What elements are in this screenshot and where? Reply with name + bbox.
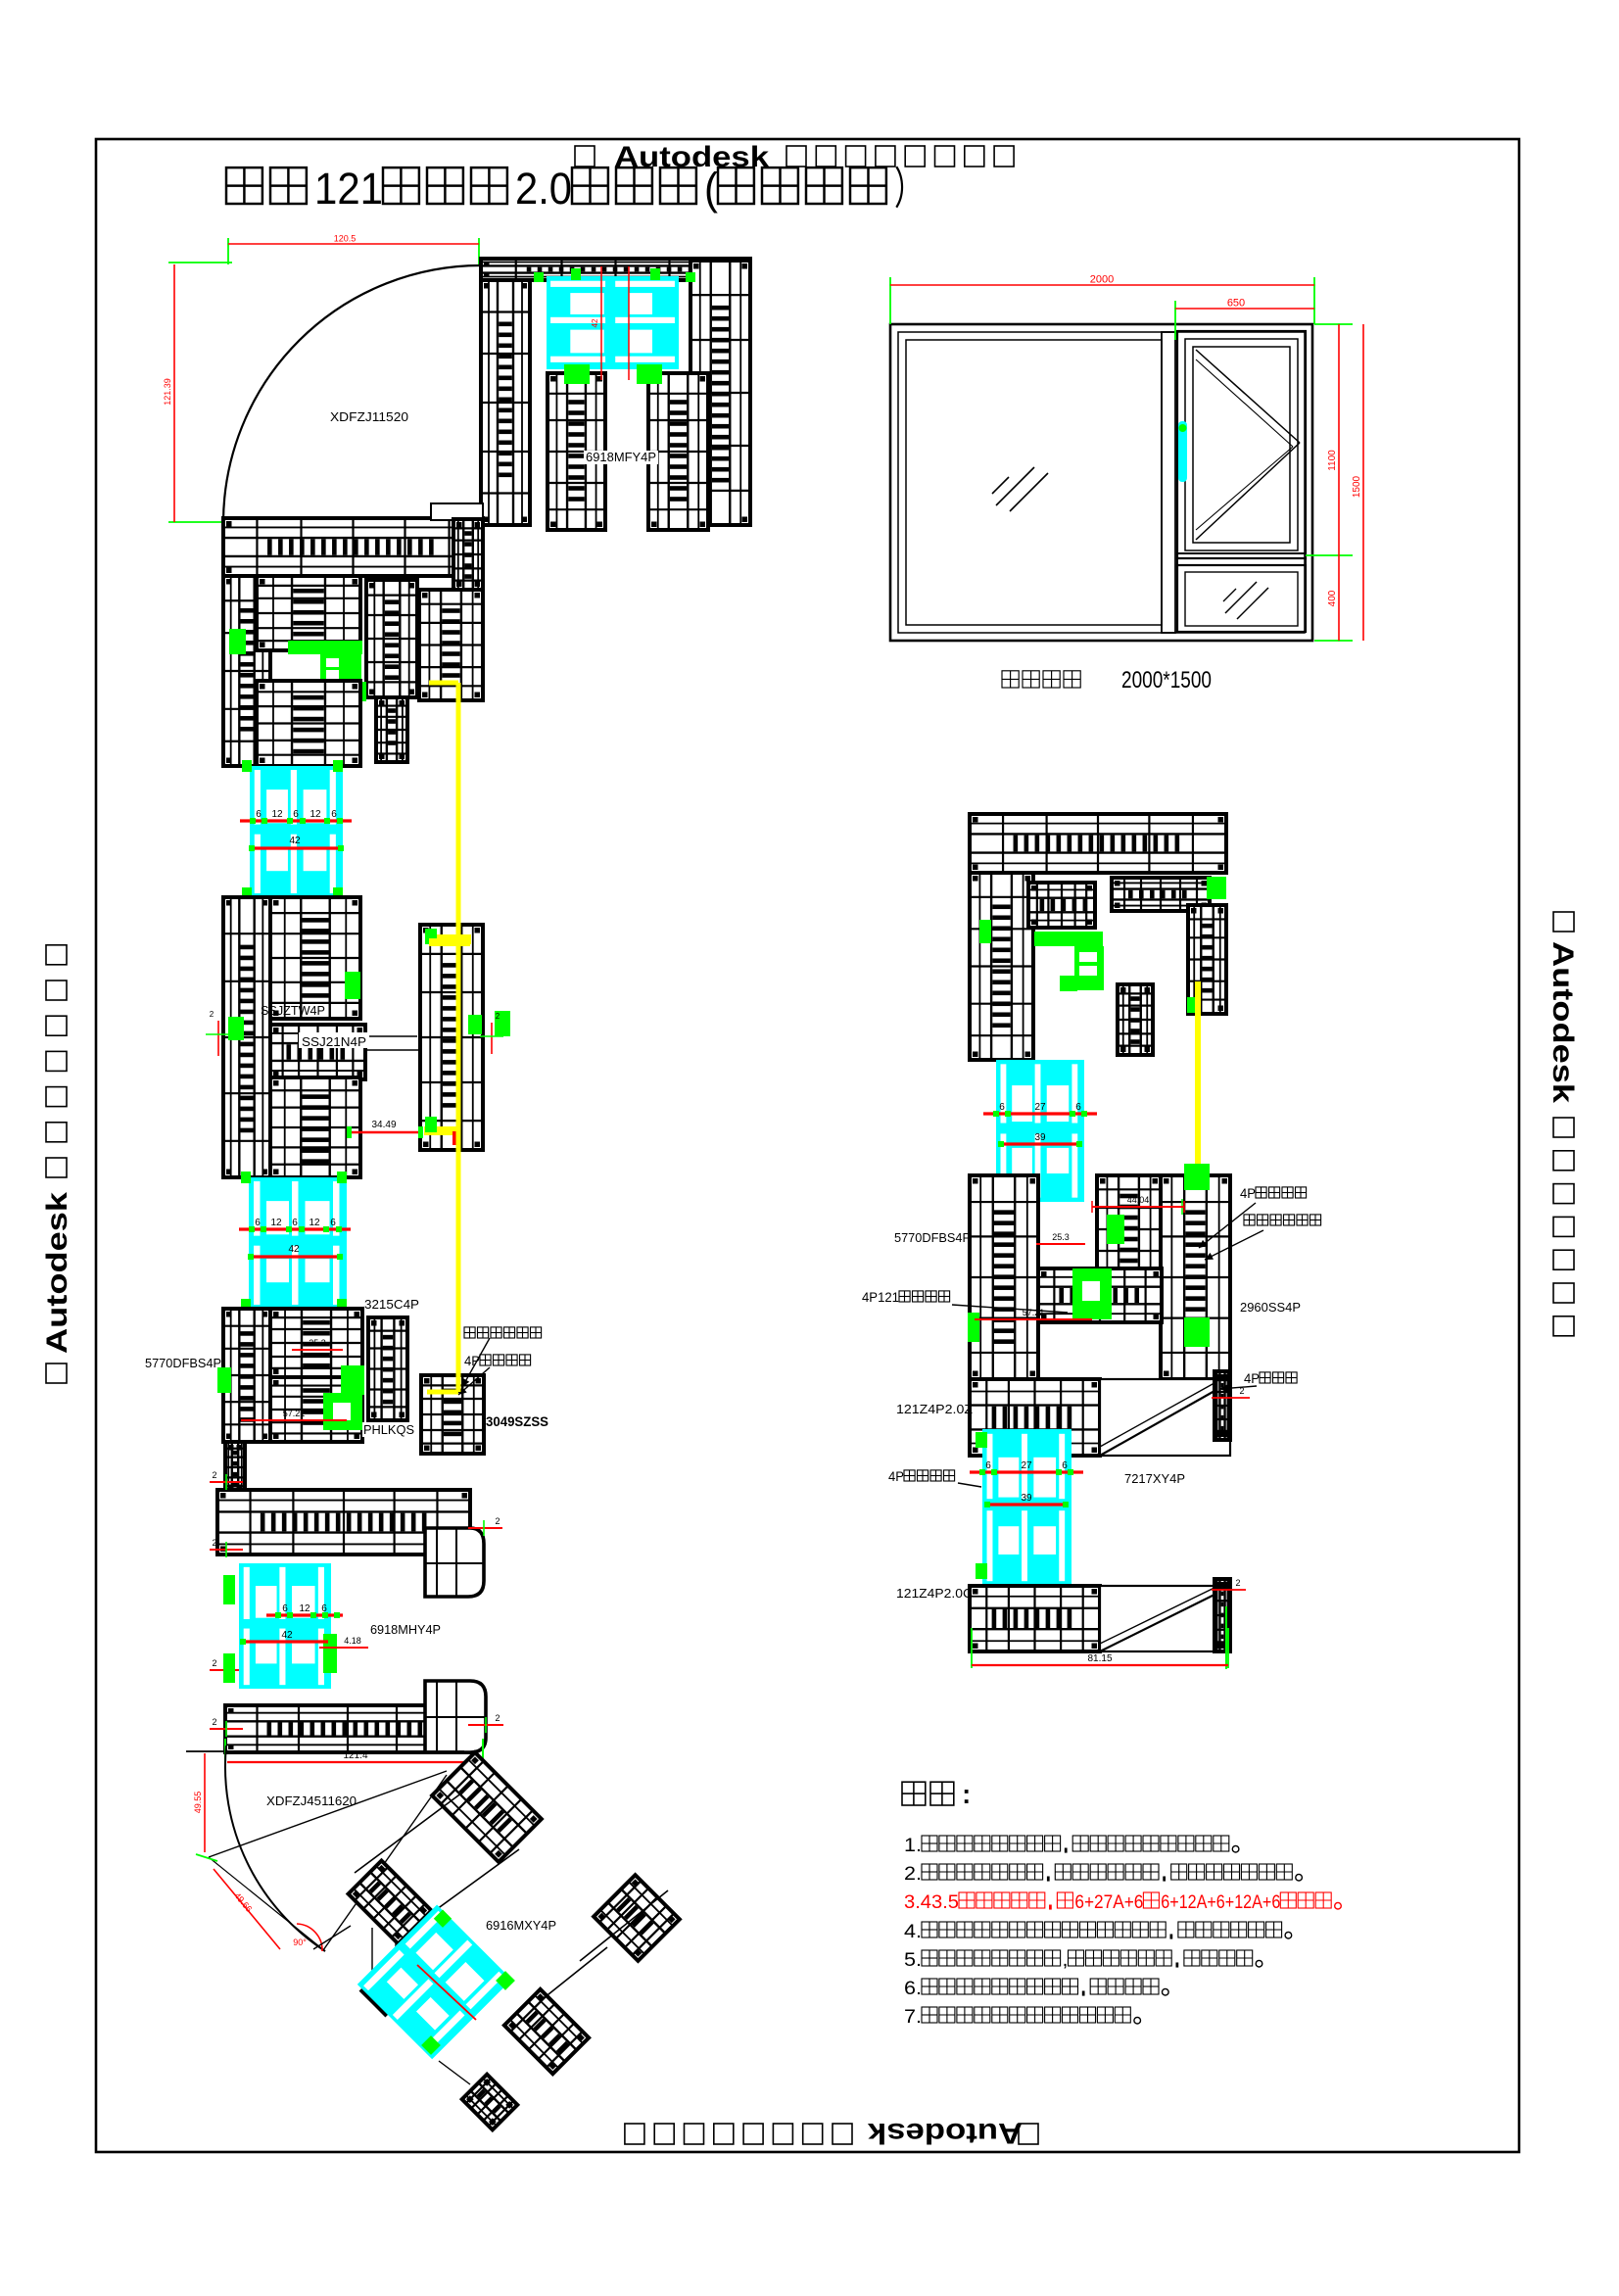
- svg-text:42: 42: [591, 318, 599, 327]
- svg-text:6: 6: [1062, 1460, 1068, 1471]
- svg-text:2: 2: [495, 1713, 500, 1723]
- svg-text:1100: 1100: [1327, 450, 1338, 471]
- svg-text:121.39: 121.39: [163, 378, 172, 406]
- svg-text:6: 6: [330, 1218, 336, 1228]
- svg-text:2: 2: [496, 1012, 500, 1021]
- svg-text:6: 6: [282, 1603, 288, 1614]
- svg-text:3215C4P: 3215C4P: [364, 1297, 419, 1312]
- svg-text:4.: 4.: [904, 1921, 922, 1942]
- svg-text:2: 2: [212, 1538, 216, 1548]
- svg-text:6: 6: [985, 1460, 991, 1471]
- svg-text:2960SS4P: 2960SS4P: [1240, 1300, 1301, 1315]
- svg-text:6: 6: [292, 1218, 298, 1228]
- svg-text:1500: 1500: [1352, 475, 1362, 498]
- svg-text:4P: 4P: [464, 1354, 480, 1368]
- svg-text:49.55: 49.55: [193, 1792, 203, 1814]
- svg-text:2000*1500: 2000*1500: [1121, 667, 1212, 694]
- svg-text:5770DFBS4P: 5770DFBS4P: [145, 1356, 221, 1370]
- svg-text:Autodesk: Autodesk: [868, 2117, 1023, 2149]
- svg-text:7.: 7.: [904, 2006, 922, 2028]
- svg-text:42: 42: [281, 1630, 293, 1641]
- svg-text:6: 6: [293, 809, 299, 820]
- svg-text:57.21: 57.21: [283, 1409, 306, 1418]
- svg-text:2: 2: [212, 1717, 216, 1727]
- svg-text:81.15: 81.15: [1087, 1653, 1112, 1664]
- svg-text:4P121: 4P121: [862, 1290, 899, 1305]
- svg-text:39: 39: [1034, 1132, 1046, 1143]
- svg-text:121Z4P2.0C: 121Z4P2.0C: [896, 1586, 973, 1601]
- svg-text:44.04: 44.04: [1127, 1195, 1150, 1205]
- svg-text:2: 2: [210, 1010, 214, 1019]
- svg-text:5.: 5.: [904, 1949, 922, 1971]
- svg-text:Autodesk: Autodesk: [41, 1192, 73, 1354]
- svg-text:）: ）: [894, 164, 924, 214]
- svg-text:6: 6: [331, 809, 337, 820]
- svg-text:5770DFBS4P: 5770DFBS4P: [894, 1230, 971, 1245]
- svg-text:SSJ21N4P: SSJ21N4P: [302, 1034, 366, 1049]
- svg-text:2: 2: [495, 1516, 500, 1526]
- svg-text:1.: 1.: [904, 1835, 922, 1856]
- svg-text:(: (: [704, 164, 718, 214]
- svg-text:6: 6: [321, 1603, 327, 1614]
- svg-text:SSJZTW4P: SSJZTW4P: [261, 1003, 325, 1018]
- svg-text:6: 6: [1075, 1102, 1081, 1113]
- svg-text:2.: 2.: [904, 1863, 922, 1885]
- svg-text:3.43.5: 3.43.5: [904, 1891, 959, 1913]
- svg-text:6: 6: [999, 1102, 1005, 1113]
- svg-text:12: 12: [309, 1218, 320, 1228]
- svg-text:6918MHY4P: 6918MHY4P: [370, 1622, 441, 1637]
- svg-text:90°: 90°: [293, 1937, 307, 1947]
- svg-text:27: 27: [1021, 1460, 1032, 1471]
- svg-text:12: 12: [310, 809, 321, 820]
- svg-text:6: 6: [256, 809, 262, 820]
- svg-text:2: 2: [212, 1658, 216, 1668]
- svg-text:2: 2: [1235, 1578, 1240, 1588]
- svg-text:400: 400: [1327, 590, 1338, 606]
- svg-text:650: 650: [1227, 298, 1245, 310]
- svg-text:12: 12: [270, 1218, 282, 1228]
- svg-text:12: 12: [271, 809, 283, 820]
- svg-text:2.0: 2.0: [515, 164, 572, 214]
- svg-text:6: 6: [255, 1218, 261, 1228]
- svg-text:120.5: 120.5: [334, 234, 357, 244]
- svg-text:4.18: 4.18: [344, 1636, 361, 1646]
- svg-text:25.3: 25.3: [1052, 1232, 1070, 1242]
- svg-text:121Z4P2.0Z: 121Z4P2.0Z: [896, 1402, 973, 1416]
- svg-text:27: 27: [1034, 1102, 1046, 1113]
- svg-text:12: 12: [299, 1603, 310, 1614]
- svg-text:2000: 2000: [1090, 274, 1114, 286]
- svg-text:25.3: 25.3: [309, 1338, 326, 1348]
- svg-text:PHLKQS: PHLKQS: [363, 1422, 414, 1437]
- svg-text:42: 42: [289, 836, 301, 846]
- svg-text:6918MFY4P: 6918MFY4P: [586, 450, 656, 464]
- svg-text:34.49: 34.49: [371, 1120, 396, 1130]
- svg-text:3049SZSS: 3049SZSS: [486, 1414, 548, 1429]
- svg-text:121: 121: [314, 164, 383, 214]
- svg-text:7217XY4P: 7217XY4P: [1124, 1471, 1185, 1486]
- svg-text:2: 2: [212, 1470, 216, 1480]
- svg-text:4P: 4P: [888, 1469, 904, 1484]
- svg-text:6+12A+6+12A+6: 6+12A+6+12A+6: [1161, 1891, 1280, 1913]
- svg-text:6.: 6.: [904, 1978, 922, 1999]
- svg-text:42: 42: [288, 1244, 300, 1255]
- svg-text:121.4: 121.4: [343, 1750, 367, 1761]
- svg-text:4P: 4P: [1240, 1186, 1256, 1201]
- svg-text:6916MXY4P: 6916MXY4P: [486, 1918, 556, 1933]
- svg-text:XDFZJ4511620: XDFZJ4511620: [266, 1794, 357, 1808]
- svg-text:6+27A+6: 6+27A+6: [1074, 1891, 1143, 1913]
- svg-text:39: 39: [1021, 1493, 1032, 1504]
- svg-text:,: ,: [1063, 1949, 1069, 1971]
- svg-text:XDFZJ11520: XDFZJ11520: [330, 409, 408, 424]
- svg-text:Autodesk: Autodesk: [1547, 941, 1579, 1103]
- svg-text:4P: 4P: [1244, 1371, 1260, 1386]
